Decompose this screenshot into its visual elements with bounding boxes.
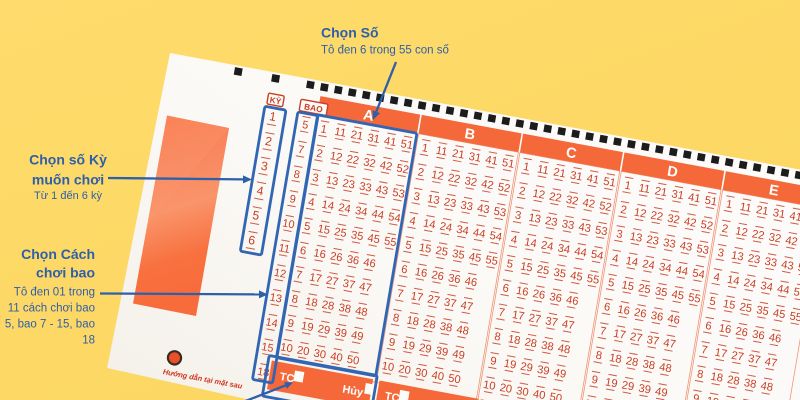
svg-text:35: 35 — [350, 229, 364, 243]
svg-text:19: 19 — [503, 358, 517, 372]
svg-text:37: 37 — [646, 334, 660, 348]
svg-text:11: 11 — [739, 201, 752, 215]
svg-text:42: 42 — [582, 197, 596, 211]
svg-text:11: 11 — [536, 163, 549, 177]
svg-text:48: 48 — [354, 305, 368, 319]
svg-text:52: 52 — [497, 181, 511, 195]
svg-text:31: 31 — [468, 151, 482, 165]
svg-text:48: 48 — [658, 361, 672, 375]
svg-text:42: 42 — [379, 159, 393, 173]
svg-text:28: 28 — [321, 299, 335, 313]
svg-text:20: 20 — [296, 344, 310, 358]
svg-text:13: 13 — [730, 249, 744, 263]
svg-text:28: 28 — [422, 318, 436, 332]
svg-text:37: 37 — [443, 296, 457, 310]
svg-text:55: 55 — [586, 273, 600, 287]
svg-text:15: 15 — [722, 298, 736, 312]
svg-text:47: 47 — [358, 281, 372, 295]
svg-text:46: 46 — [768, 332, 782, 346]
svg-text:11: 11 — [334, 126, 347, 140]
svg-text:44: 44 — [573, 245, 587, 259]
svg-text:34: 34 — [557, 242, 571, 256]
svg-text:13: 13 — [629, 231, 643, 245]
svg-text:18: 18 — [608, 352, 622, 366]
svg-text:11: 11 — [435, 145, 448, 159]
svg-text:23: 23 — [341, 177, 355, 191]
svg-text:55: 55 — [789, 310, 800, 324]
svg-text:16: 16 — [718, 322, 732, 336]
svg-text:27: 27 — [629, 331, 643, 345]
svg-text:41: 41 — [586, 173, 600, 187]
svg-text:49: 49 — [350, 329, 364, 343]
svg-text:29: 29 — [621, 379, 635, 393]
svg-text:25: 25 — [536, 264, 550, 278]
svg-text:32: 32 — [565, 194, 579, 208]
svg-text:34: 34 — [354, 205, 368, 219]
svg-text:32: 32 — [362, 156, 376, 170]
svg-text:32: 32 — [768, 231, 782, 245]
svg-text:36: 36 — [650, 310, 664, 324]
svg-text:11: 11 — [638, 182, 651, 196]
svg-text:29: 29 — [418, 342, 432, 356]
svg-text:37: 37 — [342, 278, 356, 292]
svg-text:55: 55 — [687, 292, 701, 306]
svg-text:26: 26 — [532, 288, 546, 302]
svg-text:26: 26 — [633, 307, 647, 321]
svg-text:Chọn Cách: Chọn Cách — [21, 246, 95, 262]
svg-text:24: 24 — [641, 258, 655, 272]
svg-text:31: 31 — [366, 132, 380, 146]
svg-text:27: 27 — [325, 275, 339, 289]
svg-text:39: 39 — [536, 364, 550, 378]
svg-text:34: 34 — [658, 261, 672, 275]
svg-text:36: 36 — [549, 291, 563, 305]
svg-text:49: 49 — [654, 386, 668, 400]
svg-text:46: 46 — [362, 257, 376, 271]
svg-text:34: 34 — [759, 280, 773, 294]
svg-text:17: 17 — [714, 347, 728, 361]
svg-text:45: 45 — [468, 251, 482, 265]
svg-text:29: 29 — [519, 361, 533, 375]
svg-text:18: 18 — [304, 296, 318, 310]
svg-text:48: 48 — [456, 324, 470, 338]
svg-text:40: 40 — [431, 369, 445, 383]
svg-text:16: 16 — [312, 247, 326, 261]
svg-text:36: 36 — [346, 253, 360, 267]
svg-text:53: 53 — [391, 187, 405, 201]
svg-text:14: 14 — [321, 199, 335, 213]
svg-text:54: 54 — [691, 267, 705, 281]
svg-text:37: 37 — [747, 353, 761, 367]
svg-text:45: 45 — [772, 307, 786, 321]
svg-text:25: 25 — [435, 245, 449, 259]
svg-text:19: 19 — [300, 320, 314, 334]
svg-text:37: 37 — [544, 315, 558, 329]
svg-text:40: 40 — [329, 351, 343, 365]
svg-text:45: 45 — [671, 288, 685, 302]
svg-text:44: 44 — [472, 227, 486, 241]
svg-text:51: 51 — [400, 138, 414, 152]
svg-text:35: 35 — [553, 267, 567, 281]
svg-text:14: 14 — [523, 236, 537, 250]
svg-text:Tô đen 6 trong 55 con số: Tô đen 6 trong 55 con số — [321, 45, 449, 57]
svg-text:17: 17 — [511, 309, 525, 323]
svg-text:23: 23 — [646, 234, 660, 248]
svg-text:44: 44 — [776, 283, 790, 297]
svg-text:52: 52 — [598, 200, 612, 214]
svg-text:39: 39 — [637, 383, 651, 397]
svg-text:10: 10 — [381, 360, 395, 374]
svg-text:10: 10 — [482, 379, 496, 393]
svg-text:15: 15 — [260, 341, 274, 355]
svg-text:13: 13 — [528, 212, 542, 226]
svg-text:36: 36 — [751, 328, 765, 342]
svg-text:48: 48 — [557, 343, 571, 357]
svg-text:20: 20 — [397, 363, 411, 377]
svg-text:12: 12 — [273, 267, 287, 281]
svg-text:32: 32 — [464, 175, 478, 189]
svg-text:28: 28 — [625, 355, 639, 369]
svg-text:9: 9 — [692, 393, 700, 400]
svg-text:12: 12 — [329, 150, 343, 164]
svg-text:35: 35 — [451, 248, 465, 262]
svg-text:53: 53 — [594, 224, 608, 238]
svg-text:12: 12 — [734, 225, 748, 239]
svg-text:17: 17 — [410, 290, 424, 304]
svg-text:13: 13 — [325, 174, 339, 188]
svg-text:10: 10 — [279, 341, 293, 355]
svg-text:23: 23 — [443, 196, 457, 210]
svg-text:33: 33 — [561, 218, 575, 232]
svg-text:15: 15 — [317, 223, 331, 237]
svg-text:18: 18 — [82, 335, 95, 347]
svg-text:33: 33 — [662, 237, 676, 251]
svg-text:Chọn số Kỳ: Chọn số Kỳ — [29, 152, 107, 168]
svg-text:49: 49 — [553, 367, 567, 381]
svg-text:47: 47 — [561, 318, 575, 332]
svg-text:36: 36 — [447, 272, 461, 286]
svg-text:24: 24 — [337, 202, 351, 216]
svg-text:43: 43 — [679, 240, 693, 254]
svg-text:41: 41 — [687, 191, 701, 205]
svg-text:12: 12 — [532, 188, 546, 202]
svg-text:30: 30 — [414, 366, 428, 380]
svg-text:43: 43 — [476, 202, 490, 216]
svg-text:18: 18 — [710, 371, 724, 385]
svg-text:28: 28 — [726, 374, 740, 388]
svg-text:chơi bao: chơi bao — [36, 265, 95, 281]
svg-text:47: 47 — [764, 356, 778, 370]
svg-text:26: 26 — [329, 250, 343, 264]
svg-text:14: 14 — [625, 255, 639, 269]
svg-text:51: 51 — [602, 176, 616, 190]
svg-text:53: 53 — [695, 243, 709, 257]
svg-text:Từ 1 đến 6 kỳ: Từ 1 đến 6 kỳ — [34, 190, 102, 202]
svg-text:54: 54 — [590, 249, 604, 263]
svg-text:13: 13 — [269, 292, 283, 306]
svg-text:46: 46 — [464, 275, 478, 289]
svg-text:26: 26 — [734, 325, 748, 339]
svg-text:29: 29 — [317, 323, 331, 337]
svg-text:51: 51 — [704, 194, 718, 208]
svg-text:22: 22 — [650, 210, 664, 224]
svg-text:21: 21 — [755, 204, 769, 218]
svg-text:5, bao 7 - 15, bao: 5, bao 7 - 15, bao — [5, 319, 95, 331]
svg-text:34: 34 — [455, 224, 469, 238]
svg-text:38: 38 — [642, 358, 656, 372]
svg-text:12: 12 — [430, 169, 444, 183]
svg-text:21: 21 — [552, 166, 566, 180]
svg-text:41: 41 — [788, 210, 800, 224]
svg-text:33: 33 — [764, 256, 778, 270]
svg-text:22: 22 — [346, 153, 360, 167]
svg-text:46: 46 — [565, 294, 579, 308]
svg-text:52: 52 — [396, 162, 410, 176]
svg-text:35: 35 — [755, 304, 769, 318]
svg-text:14: 14 — [265, 316, 279, 330]
svg-text:14: 14 — [726, 274, 740, 288]
svg-text:42: 42 — [784, 234, 798, 248]
svg-text:15: 15 — [621, 279, 635, 293]
svg-text:41: 41 — [484, 154, 498, 168]
svg-text:41: 41 — [383, 135, 397, 149]
svg-text:20: 20 — [499, 382, 513, 396]
svg-text:13: 13 — [426, 193, 440, 207]
svg-text:19: 19 — [604, 376, 618, 390]
svg-text:47: 47 — [460, 300, 474, 314]
svg-text:32: 32 — [666, 213, 680, 227]
svg-text:15: 15 — [519, 260, 533, 274]
svg-text:53: 53 — [493, 205, 507, 219]
svg-text:43: 43 — [578, 221, 592, 235]
svg-text:27: 27 — [426, 293, 440, 307]
svg-text:11: 11 — [278, 242, 291, 256]
svg-text:14: 14 — [422, 217, 436, 231]
svg-text:40: 40 — [532, 388, 546, 400]
svg-text:24: 24 — [439, 221, 453, 235]
svg-text:47: 47 — [662, 337, 676, 351]
svg-text:48: 48 — [760, 380, 774, 394]
svg-text:31: 31 — [772, 207, 786, 221]
svg-text:25: 25 — [739, 301, 753, 315]
svg-text:25: 25 — [637, 282, 651, 296]
svg-text:49: 49 — [451, 348, 465, 362]
svg-text:28: 28 — [524, 336, 538, 350]
svg-text:30: 30 — [313, 347, 327, 361]
svg-text:21: 21 — [451, 148, 465, 162]
svg-text:24: 24 — [743, 277, 757, 291]
svg-text:23: 23 — [544, 215, 558, 229]
svg-text:55: 55 — [383, 235, 397, 249]
svg-text:23: 23 — [747, 253, 761, 267]
svg-text:21: 21 — [654, 185, 668, 199]
svg-text:30: 30 — [515, 385, 529, 399]
svg-text:12: 12 — [633, 206, 647, 220]
svg-text:42: 42 — [683, 216, 697, 230]
svg-text:54: 54 — [489, 230, 503, 244]
svg-text:27: 27 — [528, 312, 542, 326]
svg-text:11 cách chơi bao: 11 cách chơi bao — [8, 303, 95, 315]
svg-text:19: 19 — [401, 339, 415, 353]
svg-text:39: 39 — [435, 345, 449, 359]
svg-text:44: 44 — [371, 208, 385, 222]
svg-text:26: 26 — [430, 269, 444, 283]
svg-text:15: 15 — [418, 242, 432, 256]
svg-text:39: 39 — [333, 326, 347, 340]
svg-text:31: 31 — [670, 188, 684, 202]
svg-text:45: 45 — [569, 270, 583, 284]
svg-text:16: 16 — [414, 266, 428, 280]
svg-text:Tô đen 01 trong: Tô đen 01 trong — [14, 287, 95, 299]
svg-text:52: 52 — [700, 219, 714, 233]
svg-text:46: 46 — [666, 313, 680, 327]
svg-text:33: 33 — [358, 181, 372, 195]
svg-text:50: 50 — [346, 354, 360, 368]
svg-text:42: 42 — [480, 178, 494, 192]
svg-text:45: 45 — [367, 232, 381, 246]
svg-text:TC: TC — [384, 390, 400, 400]
svg-text:38: 38 — [338, 302, 352, 316]
svg-text:51: 51 — [501, 157, 515, 171]
svg-text:55: 55 — [485, 254, 499, 268]
svg-text:38: 38 — [743, 377, 757, 391]
svg-text:22: 22 — [548, 191, 562, 205]
svg-text:33: 33 — [460, 199, 474, 213]
svg-text:27: 27 — [730, 350, 744, 364]
svg-text:24: 24 — [540, 239, 554, 253]
svg-text:31: 31 — [569, 170, 583, 184]
svg-text:50: 50 — [447, 372, 461, 386]
svg-text:16: 16 — [515, 285, 529, 299]
svg-text:54: 54 — [793, 286, 800, 300]
svg-text:muốn chơi: muốn chơi — [32, 172, 104, 188]
svg-text:22: 22 — [751, 228, 765, 242]
svg-text:50: 50 — [549, 391, 563, 400]
svg-text:44: 44 — [675, 264, 689, 278]
svg-text:18: 18 — [507, 333, 521, 347]
svg-text:54: 54 — [387, 211, 401, 225]
svg-text:43: 43 — [780, 259, 794, 273]
svg-text:10: 10 — [281, 217, 295, 231]
svg-text:17: 17 — [612, 328, 626, 342]
svg-text:25: 25 — [333, 226, 347, 240]
svg-text:38: 38 — [540, 339, 554, 353]
svg-text:16: 16 — [617, 304, 631, 318]
svg-text:43: 43 — [375, 184, 389, 198]
svg-text:21: 21 — [350, 129, 364, 143]
svg-text:35: 35 — [654, 285, 668, 299]
svg-text:22: 22 — [447, 172, 461, 186]
svg-text:38: 38 — [439, 321, 453, 335]
svg-text:17: 17 — [308, 272, 322, 286]
svg-text:Chọn Số: Chọn Số — [321, 25, 379, 41]
svg-text:18: 18 — [406, 314, 420, 328]
